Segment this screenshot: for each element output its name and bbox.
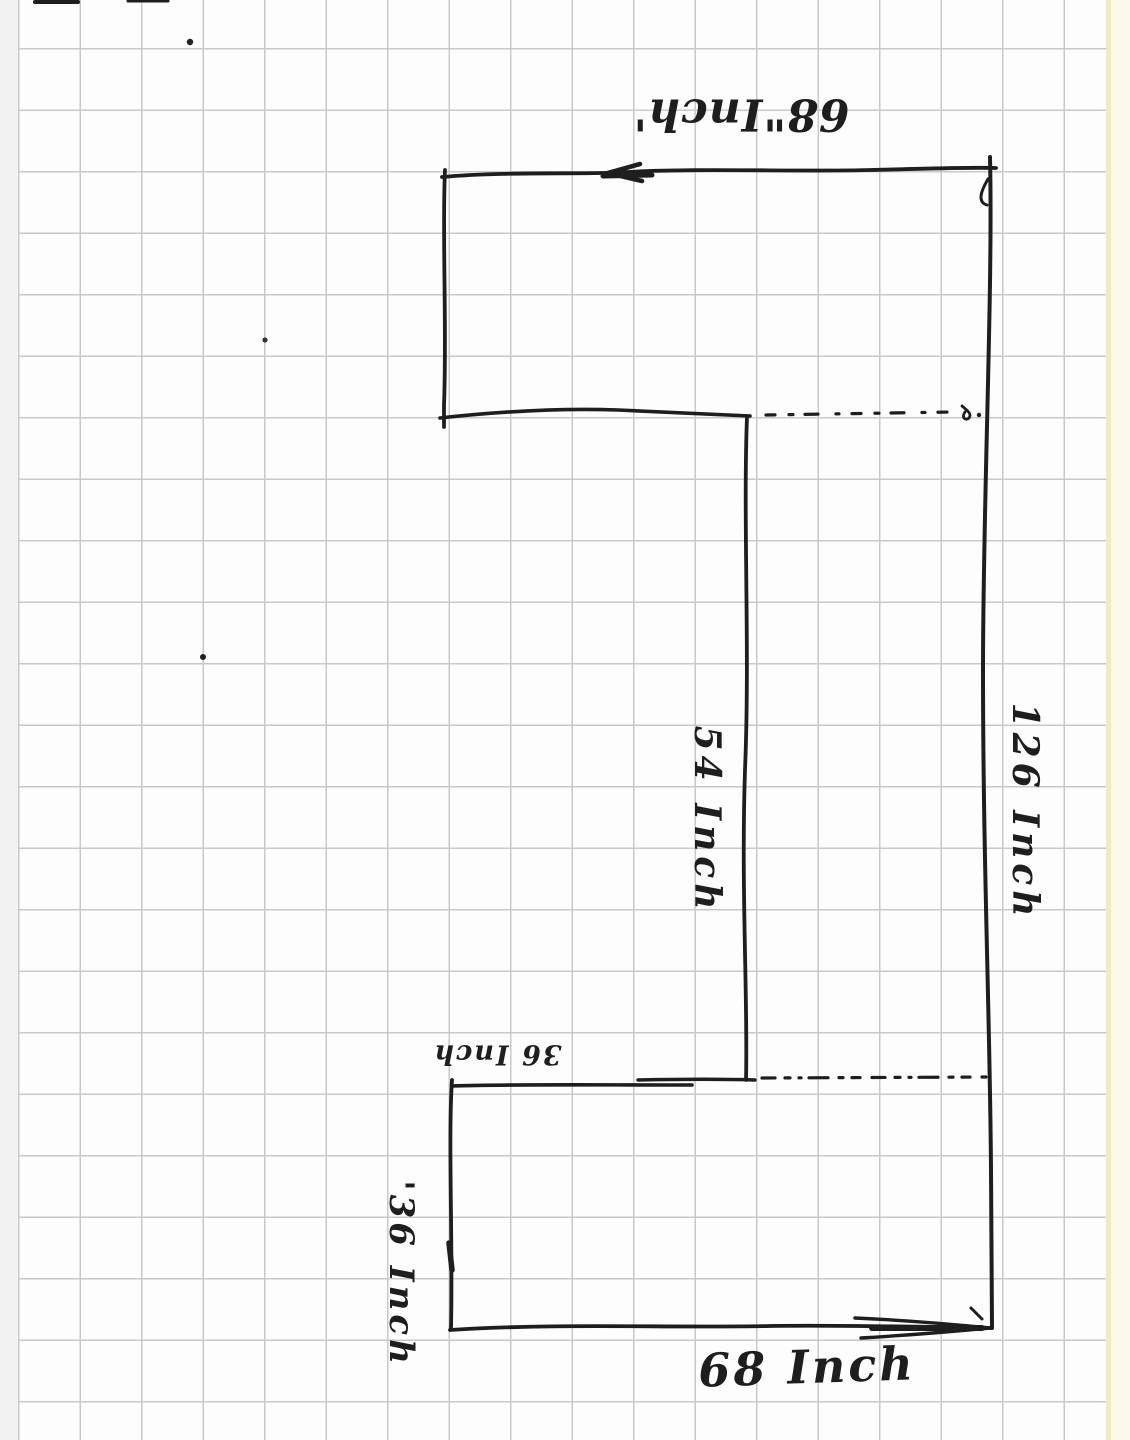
sketch-drawing [0, 0, 1130, 1440]
ink-speck [262, 337, 267, 342]
upper-rectangle [440, 164, 996, 427]
dimension-label-top-width: 68"Inch' [633, 89, 850, 140]
dimension-label-lower-top-width: 36 Inch [432, 1039, 561, 1070]
upper-left-edge [444, 170, 445, 427]
lower-top-edge-overstroke [638, 1079, 755, 1080]
lower-left-edge-blob [449, 1243, 452, 1270]
dimension-label-bottom-width: 68 Inch [697, 1336, 916, 1398]
upper-bottom-edge-dashed [766, 412, 952, 415]
right-edge [983, 157, 992, 1328]
right-side [981, 157, 992, 1328]
middle-connector [744, 417, 747, 1080]
left-arrowhead-base [603, 175, 652, 176]
ink-speck [187, 39, 193, 45]
lower-rectangle [449, 1077, 991, 1338]
upper-bottom-edge-solid [440, 409, 750, 418]
corner-tick [971, 1308, 982, 1319]
lower-left-edge [450, 1080, 452, 1329]
lower-top-edge-solid [452, 1085, 692, 1086]
paper-sheet: 68"Inch' 126 Inch 54 Inch 36 Inch '36 In… [0, 0, 1130, 1440]
dimension-label-lower-left-height: '36 Inch [381, 1180, 421, 1368]
lower-top-edge-dashed [762, 1077, 986, 1078]
ink-speck [200, 654, 206, 660]
paper-specks [35, 1, 268, 660]
middle-vertical-edge [744, 417, 747, 1080]
right-edge-hook [981, 179, 988, 205]
dash-end-squiggle [962, 406, 970, 419]
dimension-label-right-height: 126 Inch [1004, 703, 1046, 922]
dash-end-dot [977, 413, 981, 417]
upper-top-edge [442, 168, 996, 177]
dimension-label-middle-height: 54 Inch [686, 726, 728, 915]
